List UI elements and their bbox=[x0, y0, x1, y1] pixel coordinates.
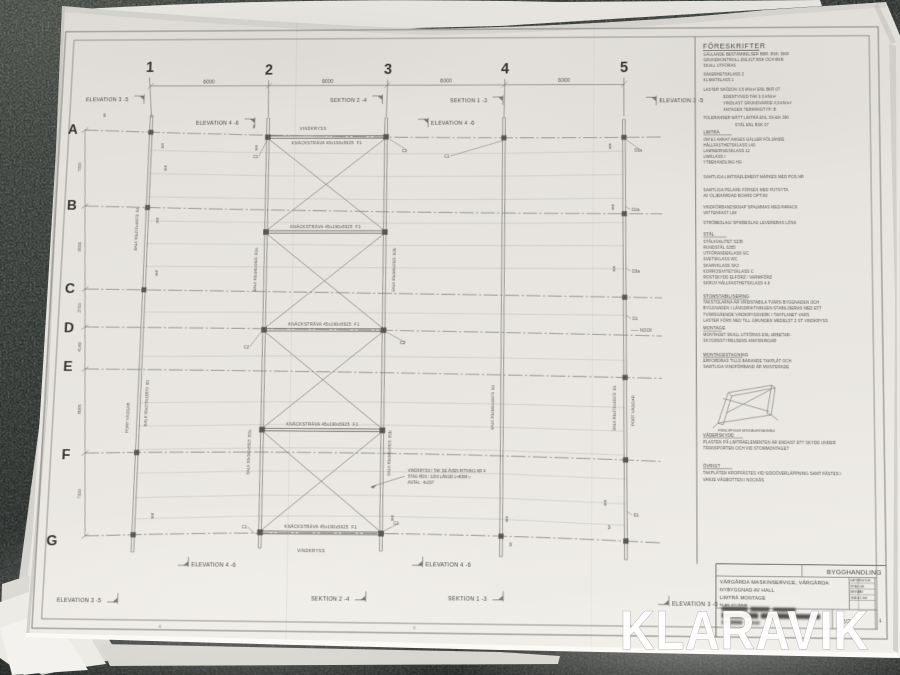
svg-text:KLARAVIK: KLARAVIK bbox=[620, 599, 869, 661]
